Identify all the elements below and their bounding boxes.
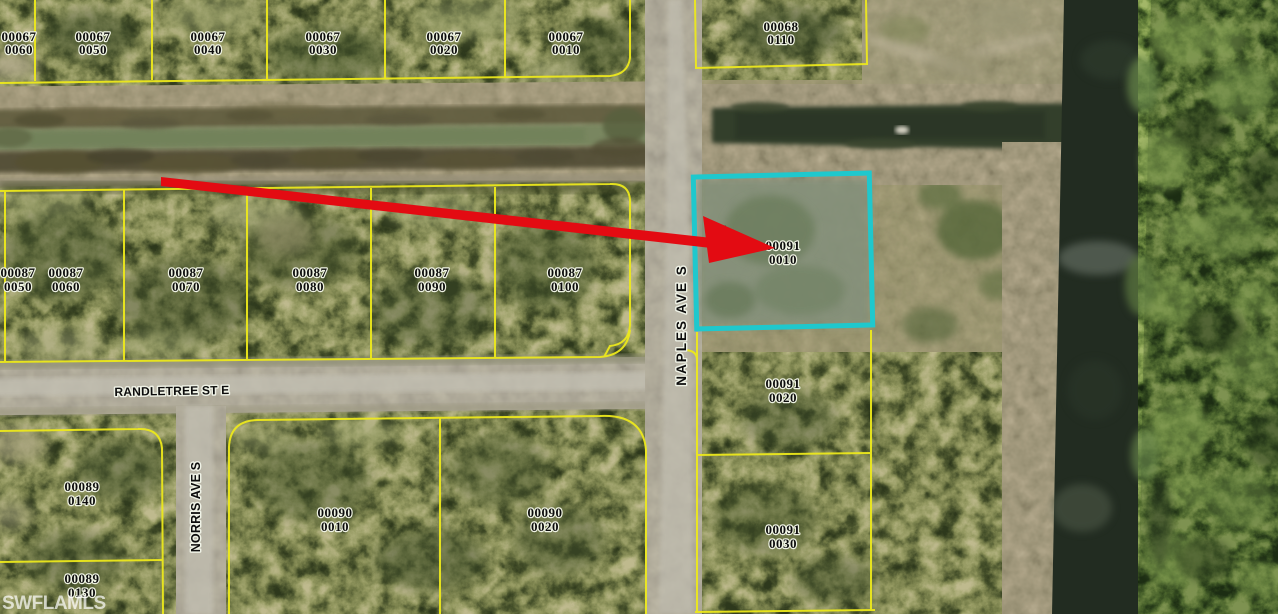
svg-text:0010: 0010 — [552, 42, 580, 57]
svg-text:00087: 00087 — [169, 265, 204, 280]
svg-text:0030: 0030 — [769, 536, 797, 551]
svg-text:0070: 0070 — [172, 279, 200, 294]
svg-text:00091: 00091 — [766, 522, 801, 537]
svg-text:00089: 00089 — [65, 479, 100, 494]
svg-text:SWFLAMLS: SWFLAMLS — [2, 593, 106, 614]
svg-text:00089: 00089 — [65, 571, 100, 586]
svg-text:0020: 0020 — [430, 42, 458, 57]
svg-text:NORRIS AVE S: NORRIS AVE S — [189, 462, 203, 553]
svg-text:0020: 0020 — [531, 519, 559, 534]
svg-text:0030: 0030 — [309, 42, 337, 57]
svg-text:0010: 0010 — [769, 252, 797, 267]
svg-text:0050: 0050 — [4, 279, 32, 294]
svg-text:0100: 0100 — [551, 279, 579, 294]
svg-text:00087: 00087 — [293, 265, 328, 280]
svg-text:0040: 0040 — [194, 42, 222, 57]
svg-text:00087: 00087 — [415, 265, 450, 280]
svg-text:0090: 0090 — [418, 279, 446, 294]
svg-text:0010: 0010 — [321, 519, 349, 534]
svg-text:0020: 0020 — [769, 390, 797, 405]
svg-text:0050: 0050 — [79, 42, 107, 57]
svg-text:00091: 00091 — [766, 238, 801, 253]
svg-text:00087: 00087 — [1, 265, 36, 280]
svg-text:00087: 00087 — [548, 265, 583, 280]
svg-text:0110: 0110 — [767, 32, 794, 47]
svg-text:NAPLES AVE S: NAPLES AVE S — [674, 264, 689, 386]
svg-text:00091: 00091 — [766, 376, 801, 391]
svg-text:00090: 00090 — [318, 505, 353, 520]
svg-text:0060: 0060 — [5, 42, 33, 57]
svg-text:0080: 0080 — [296, 279, 324, 294]
svg-text:0060: 0060 — [52, 279, 80, 294]
svg-text:00087: 00087 — [49, 265, 84, 280]
svg-text:00090: 00090 — [528, 505, 563, 520]
svg-text:RANDLETREE ST E: RANDLETREE ST E — [114, 383, 229, 399]
svg-text:0140: 0140 — [68, 493, 96, 508]
